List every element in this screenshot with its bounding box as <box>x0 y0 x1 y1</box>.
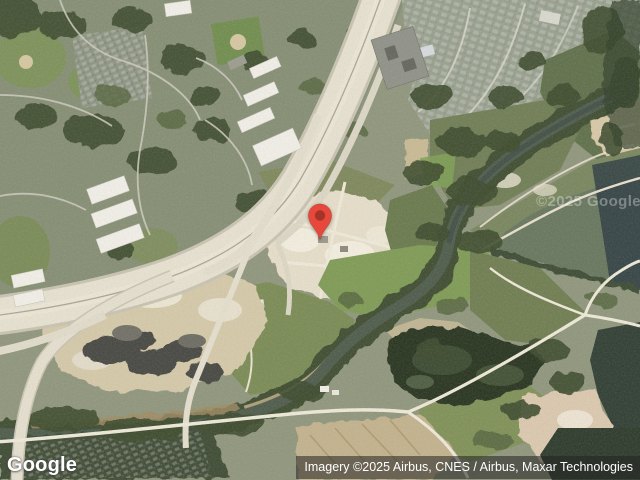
attribution-bar: Imagery ©2025 Airbus, CNES / Airbus, Max… <box>296 456 640 479</box>
pin-body <box>309 204 332 240</box>
map-pin-icon[interactable] <box>307 203 333 244</box>
google-logo[interactable]: Google <box>7 454 77 477</box>
pin-dot <box>315 210 325 220</box>
attribution-text: Imagery ©2025 Airbus, CNES / Airbus, Max… <box>304 460 633 474</box>
map-viewport[interactable]: ©2025 Google Google Imagery ©2025 Airbus… <box>0 0 640 480</box>
